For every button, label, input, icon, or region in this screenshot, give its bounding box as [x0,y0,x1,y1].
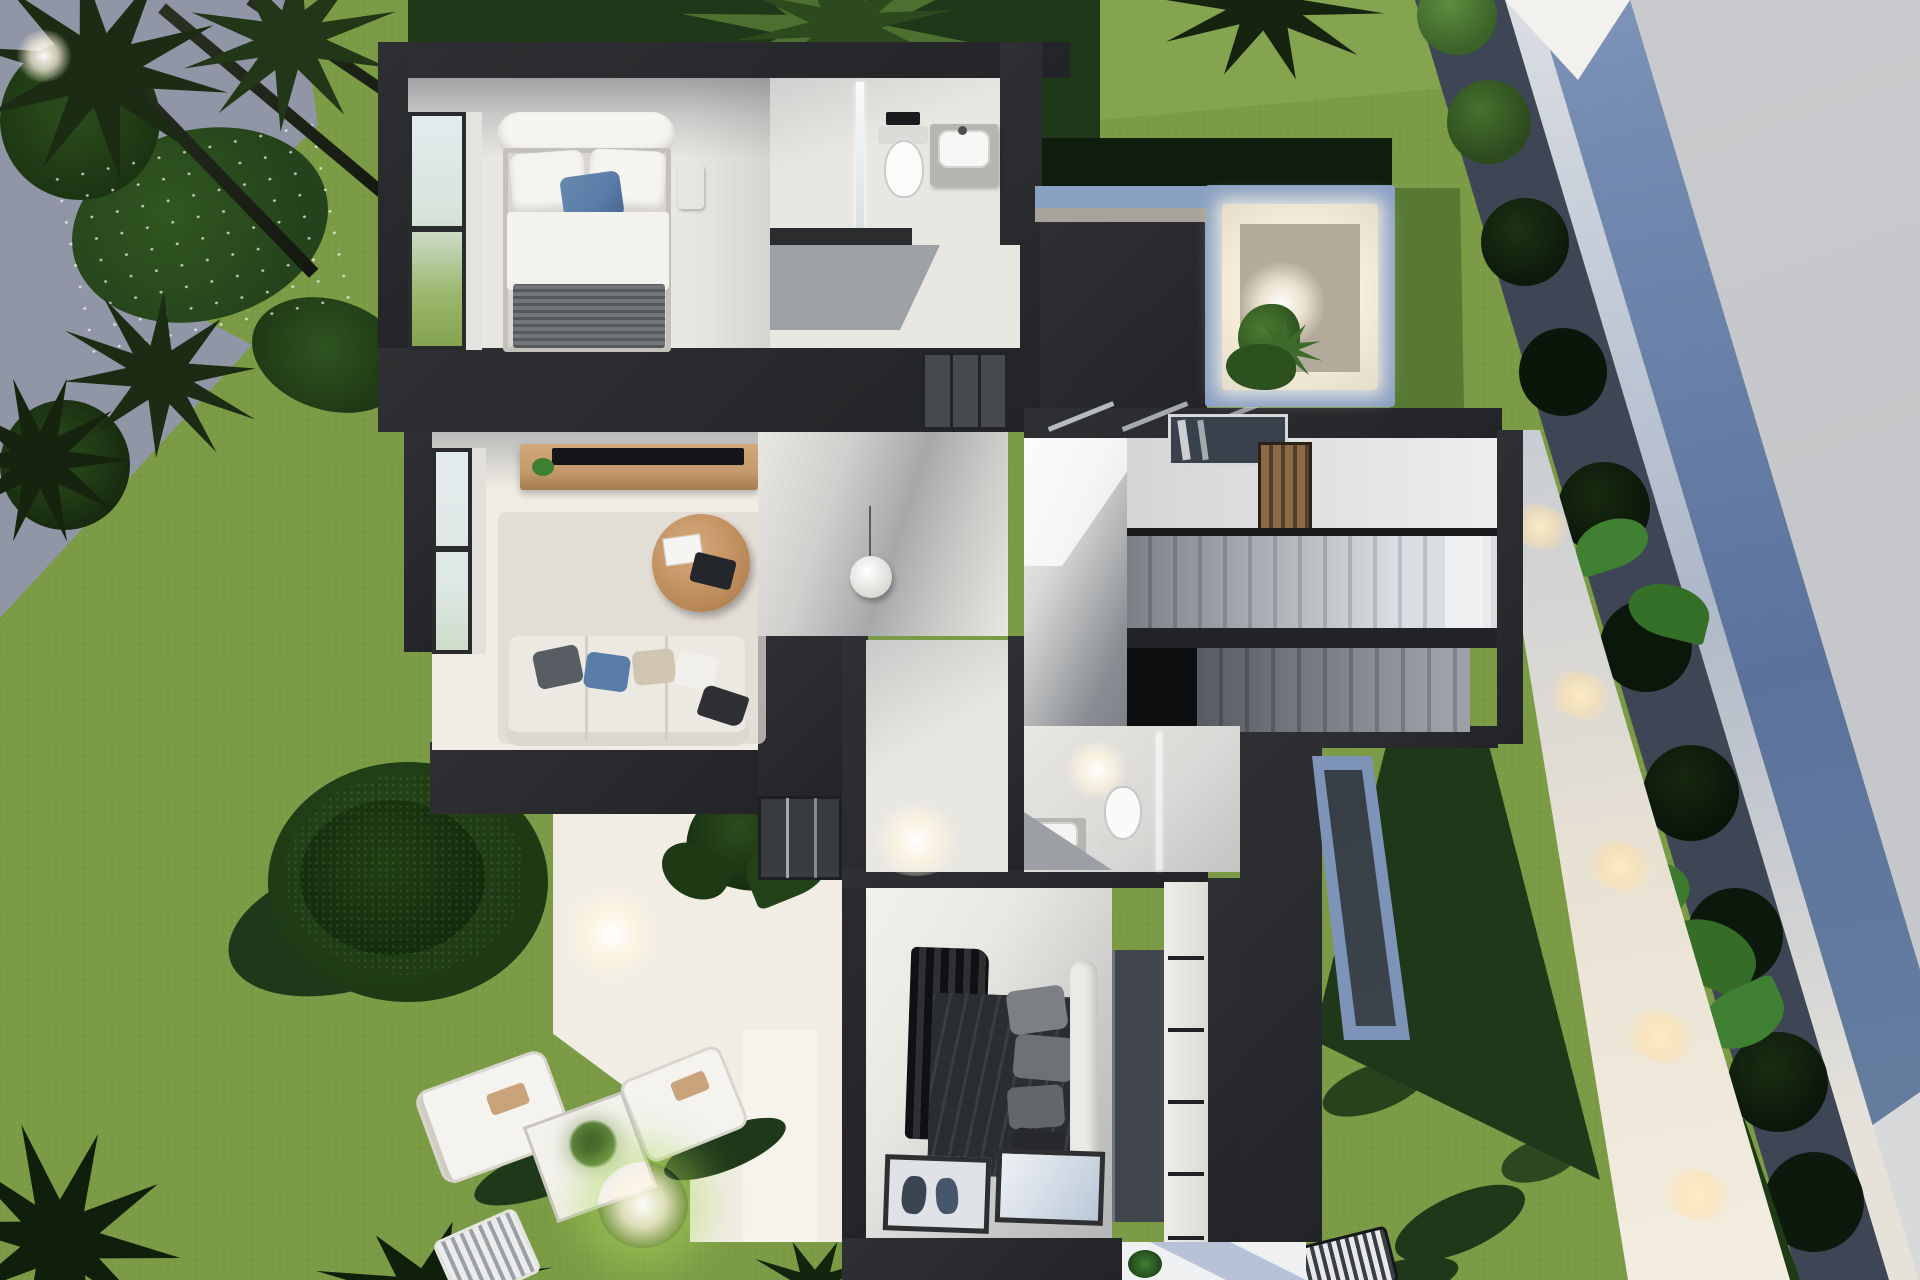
drawer-handle [1168,1172,1204,1176]
bed-1-throw [513,284,665,348]
garden-light-flare [598,1162,688,1248]
hallway-main [758,432,1008,636]
terrace-door-panel [758,796,842,880]
house-wall-west-bedroom1 [378,42,408,370]
hedge-ball [1447,80,1531,164]
house-wall-wing-west [842,636,868,1242]
bedroom-1-window-sill [466,112,482,350]
pendant-cord [869,506,871,560]
bed-2-pillow [1005,984,1069,1036]
site-plan-render [0,0,1920,1280]
console-plant [532,458,554,476]
courtyard-blue-band [1035,186,1207,208]
bathroom-1-dark-strip [770,228,912,245]
hall-door-light [868,806,964,876]
sofa-cushion-beige [631,648,676,686]
table-plant [568,1120,618,1168]
hedge-ball [1481,198,1569,286]
small-plant [1128,1250,1162,1278]
drawer-handle [1168,1100,1204,1104]
shower-screen [856,82,864,238]
house-wall-terrace-corner [758,636,842,816]
hedge-ball [1519,328,1607,416]
house-wall-bedroom2-east [1207,878,1240,1242]
drawer-handle [1168,1236,1204,1240]
house-wall-west-living [404,432,432,652]
bed-2-pillow [1012,1033,1076,1082]
house-wall-se-slab [1240,726,1322,1242]
stair-mid-divider [1127,628,1497,648]
living-window-sill [472,448,486,654]
garden-light [14,30,74,82]
entry-glass-frame-line [950,354,953,428]
bedroom-1-window-mullion [410,226,464,232]
terrace-door-frame-line [814,798,817,878]
living-window-mullion [434,546,470,552]
pendant-lamp [850,556,892,598]
house-wall-south [842,1238,1122,1280]
drawer-unit [1164,882,1208,1242]
toilet-1-flush-plate [886,112,920,125]
toilet-2-bowl [1104,786,1142,840]
floor-mat [995,1148,1106,1226]
house-wall-east-stairs [1497,430,1523,744]
house-band-living-south [430,742,762,814]
mat-slipper [935,1177,959,1214]
sink-1 [938,130,990,168]
stairwell-void [1127,648,1197,732]
toilet-1-bowl [884,140,924,198]
shower-screen-2 [1156,732,1162,870]
drawer-handle [1168,956,1204,960]
staircase-lower-shade [1197,648,1470,732]
entry-glass-panel [922,352,1008,430]
tv [552,448,744,465]
courtyard-plant [1226,344,1296,390]
wood-slat-window [1258,442,1312,534]
sofa-cushion-blue [583,651,632,693]
courtyard-gravel-sliver [1035,208,1207,222]
entry-glass-frame-line [978,354,981,428]
house-wall-north [378,42,1070,78]
bed-2-pillow [1007,1084,1066,1130]
house-wall-bath2-west [1008,636,1024,888]
terrace-door-frame-line [786,798,789,878]
hedge-ball [1643,745,1739,841]
closet-glass [1112,950,1164,1222]
faucet-1 [958,126,967,135]
house-roof-block-a [1040,210,1207,414]
sofa-seam [585,636,588,740]
drawer-handle [1168,1028,1204,1032]
bed-1-duvet [507,212,669,290]
stair-handrail [1127,528,1497,536]
patio-light [560,884,664,984]
staircase-upper-shade [1127,536,1445,628]
stair-landing-glass [1445,536,1497,628]
